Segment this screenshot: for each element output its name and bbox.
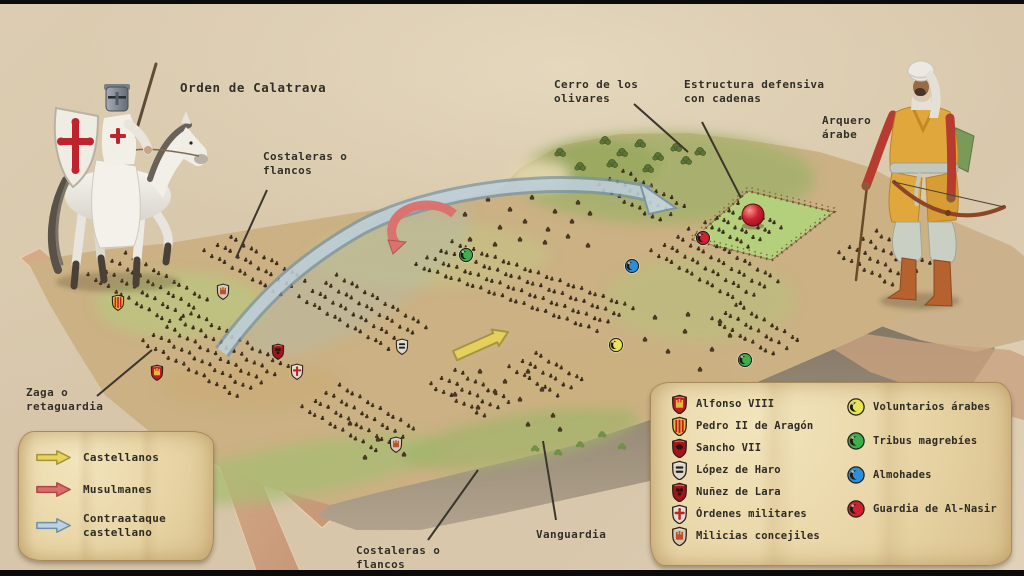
sancho-vii-shield-icon	[671, 438, 688, 459]
legend-commander-item-pedro-ii-aragon: Pedro II de Aragón	[671, 415, 849, 437]
label-costaleras-flancos-top: Costaleras o flancos	[263, 150, 347, 179]
legend-units-panel: Alfonso VIIIPedro II de AragónSancho VII…	[650, 382, 1012, 566]
map-milicias-shield-icon	[216, 283, 230, 300]
ordenes-militares-shield-icon	[671, 504, 688, 525]
map-shield-ordenes	[290, 363, 306, 383]
legend-arrows-panel: CastellanosMusulmanesContraataque castel…	[18, 431, 214, 561]
map-haro-shield-icon	[395, 338, 409, 355]
map-aragon-shield-icon	[111, 294, 125, 311]
map-tribus-magrebies-icon	[458, 247, 474, 263]
label-estructura-defensiva: Estructura defensiva con cadenas	[684, 78, 824, 107]
map-shield-milicias	[389, 436, 405, 456]
map-shield-haro	[395, 338, 411, 358]
legend-muslim-column: Voluntarios árabesTribus magrebíesAlmoha…	[847, 397, 1007, 533]
map-lara-shield-icon	[271, 343, 285, 360]
legend-muslim-item-guardia-al-nasir: Guardia de Al-Nasir	[847, 499, 1007, 519]
legend-commanders-column: Alfonso VIIIPedro II de AragónSancho VII…	[671, 393, 849, 547]
letterbox-bottom	[0, 570, 1024, 576]
legend-arrow-item-musulmanes: Musulmanes	[35, 480, 205, 499]
label-cerro-de-los-olivares: Cerro de los olivares	[554, 78, 638, 107]
legend-commander-label: Nuñez de Lara	[696, 486, 781, 498]
legend-muslim-item-tribus-magrebies: Tribus magrebíes	[847, 431, 1007, 451]
legend-commander-label: Órdenes militares	[696, 508, 807, 520]
map-tribus-magrebies-icon	[737, 352, 753, 368]
legend-commander-label: Milicias concejiles	[696, 530, 820, 542]
legend-commander-item-nunez-de-lara: Nuñez de Lara	[671, 481, 849, 503]
legend-arrow-label: Castellanos	[83, 451, 159, 465]
letterbox-top	[0, 0, 1024, 4]
legend-muslim-item-almohades: Almohades	[847, 465, 1007, 485]
label-costaleras-flancos-bottom: Costaleras o flancos	[356, 544, 440, 573]
map-shield-lara	[271, 343, 287, 363]
map-marker-guardia-al-nasir	[695, 230, 713, 248]
map-shield-milicias	[216, 283, 232, 303]
al-nasir-sphere	[742, 204, 764, 230]
pedro-ii-aragon-shield-icon	[671, 416, 688, 437]
legend-commander-item-sancho-vii: Sancho VII	[671, 437, 849, 459]
battle-map-scene: Orden de CalatravaCostaleras o flancosCe…	[0, 0, 1024, 576]
legend-commander-label: Pedro II de Aragón	[696, 420, 813, 432]
map-shield-aragon	[111, 294, 127, 314]
legend-commander-item-milicias-concejiles: Milicias concejiles	[671, 525, 849, 547]
label-vanguardia: Vanguardia	[536, 528, 606, 542]
legend-arrow-item-contraataque: Contraataque castellano	[35, 512, 205, 540]
map-castile-shield-icon	[150, 364, 164, 381]
legend-commander-item-lopez-de-haro: López de Haro	[671, 459, 849, 481]
contraataque-arrow-icon	[35, 516, 73, 535]
legend-commander-item-alfonso-viii: Alfonso VIII	[671, 393, 849, 415]
tribus-magrebies-crescent-icon	[847, 432, 865, 450]
label-arquero-arabe: Arquero árabe	[822, 114, 871, 143]
map-guardia-al-nasir-icon	[695, 230, 711, 246]
map-marker-tribus-magrebies	[458, 247, 476, 265]
label-zaga-retaguardia: Zaga o retaguardia	[26, 386, 103, 415]
milicias-concejiles-shield-icon	[671, 526, 688, 547]
map-almohades-icon	[624, 258, 640, 274]
legend-muslim-item-voluntarios-arabes: Voluntarios árabes	[847, 397, 1007, 417]
legend-arrow-label: Musulmanes	[83, 483, 152, 497]
label-orden-de-calatrava: Orden de Calatrava	[180, 80, 326, 96]
legend-commander-label: López de Haro	[696, 464, 781, 476]
map-voluntarios-arabes-icon	[608, 337, 624, 353]
alfonso-viii-shield-icon	[671, 394, 688, 415]
lopez-de-haro-shield-icon	[671, 460, 688, 481]
legend-commander-label: Alfonso VIII	[696, 398, 774, 410]
legend-muslim-label: Guardia de Al-Nasir	[873, 503, 997, 515]
legend-commander-item-ordenes-militares: Órdenes militares	[671, 503, 849, 525]
castellanos-arrow-icon	[35, 448, 73, 467]
legend-commander-label: Sancho VII	[696, 442, 761, 454]
map-marker-voluntarios-arabes	[608, 337, 626, 355]
guardia-al-nasir-crescent-icon	[847, 500, 865, 518]
musulmanes-arrow-icon	[35, 480, 73, 499]
map-marker-tribus-magrebies	[737, 352, 755, 370]
voluntarios-arabes-crescent-icon	[847, 398, 865, 416]
legend-muslim-label: Tribus magrebíes	[873, 435, 977, 447]
map-ordenes-shield-icon	[290, 363, 304, 380]
legend-arrow-label: Contraataque castellano	[83, 512, 166, 540]
map-shield-castile	[150, 364, 166, 384]
legend-muslim-label: Almohades	[873, 469, 932, 481]
map-marker-almohades	[624, 258, 642, 276]
nunez-de-lara-shield-icon	[671, 482, 688, 503]
legend-arrow-item-castellanos: Castellanos	[35, 448, 205, 467]
legend-muslim-label: Voluntarios árabes	[873, 401, 990, 413]
map-milicias-shield-icon	[389, 436, 403, 453]
almohades-crescent-icon	[847, 466, 865, 484]
